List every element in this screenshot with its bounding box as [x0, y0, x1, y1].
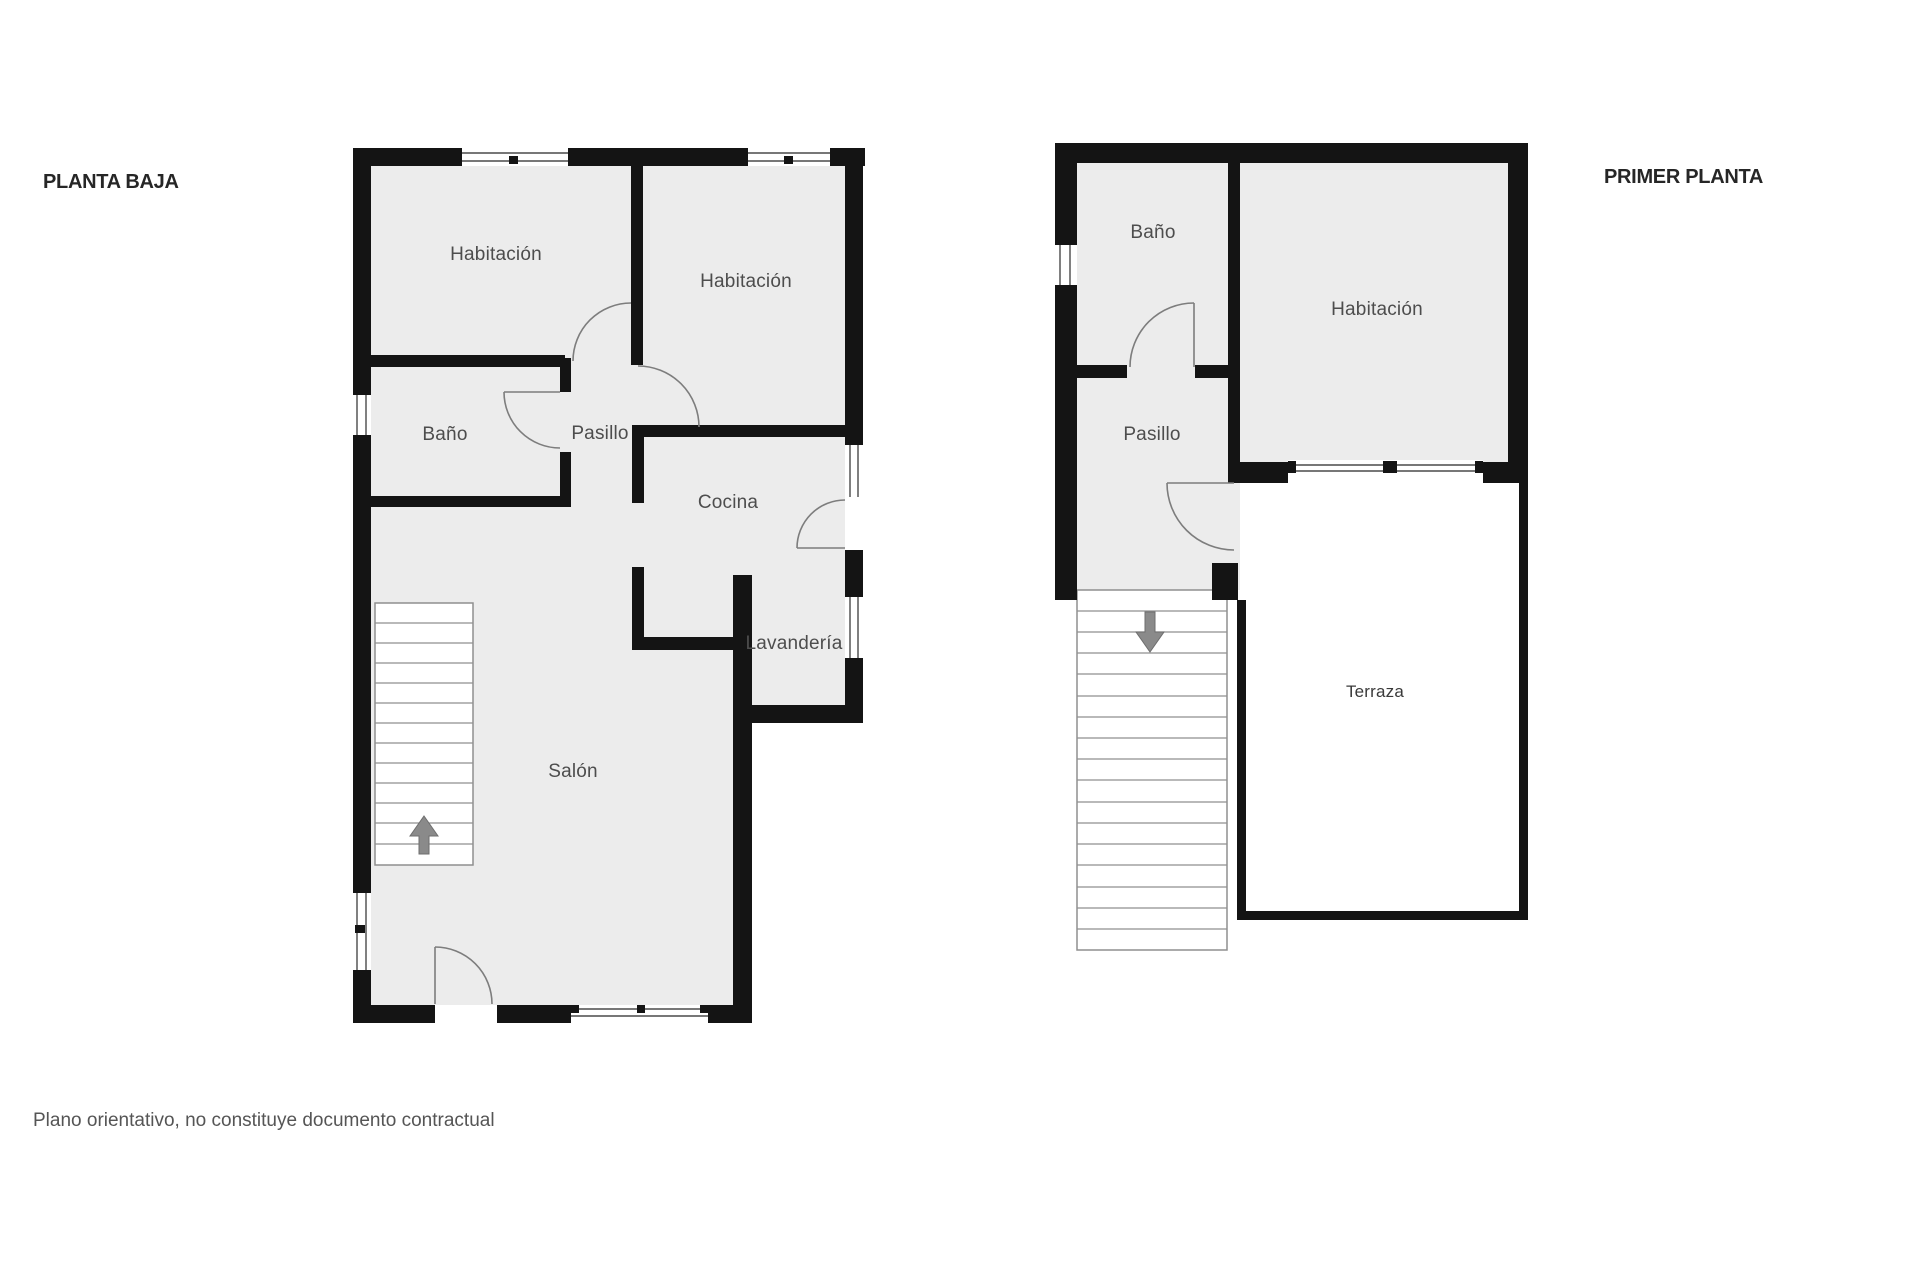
floorplan-drawing [0, 0, 1920, 1280]
room-label-bedroom2: Habitación [700, 271, 792, 293]
disclaimer-text: Plano orientativo, no constituye documen… [33, 1110, 495, 1132]
room-label-bathroom: Baño [422, 424, 467, 446]
staircase-down [1077, 590, 1227, 950]
ground-floor-title: PLANTA BAJA [43, 171, 179, 194]
room-label-laundry: Lavandería [745, 633, 842, 655]
room-label-bathroom-first: Baño [1130, 222, 1175, 244]
window-bedroom-terrace [1288, 460, 1483, 483]
staircase-up [375, 603, 473, 865]
window-kitchen-right [845, 445, 863, 497]
window-top-1 [462, 148, 568, 166]
room-label-hallway-first: Pasillo [1123, 424, 1180, 446]
floorplan-page: PLANTA BAJA PRIMER PLANTA Habitación Hab… [0, 0, 1920, 1280]
room-label-terrace: Terraza [1346, 682, 1404, 702]
window-laundry-right [845, 597, 863, 658]
first-floor-plan [1055, 143, 1528, 950]
window-top-2 [748, 148, 830, 166]
room-label-hallway: Pasillo [571, 423, 628, 445]
window-livingroom-left [353, 893, 371, 970]
window-bathroom-upper-left [1055, 245, 1077, 285]
room-label-bedroom-first: Habitación [1331, 299, 1423, 321]
window-bathroom-left [353, 395, 371, 435]
room-label-kitchen: Cocina [698, 492, 758, 514]
first-floor-title: PRIMER PLANTA [1604, 166, 1763, 189]
room-label-bedroom1: Habitación [450, 244, 542, 266]
room-label-livingroom: Salón [548, 761, 598, 783]
window-livingroom-bottom [571, 1005, 708, 1023]
